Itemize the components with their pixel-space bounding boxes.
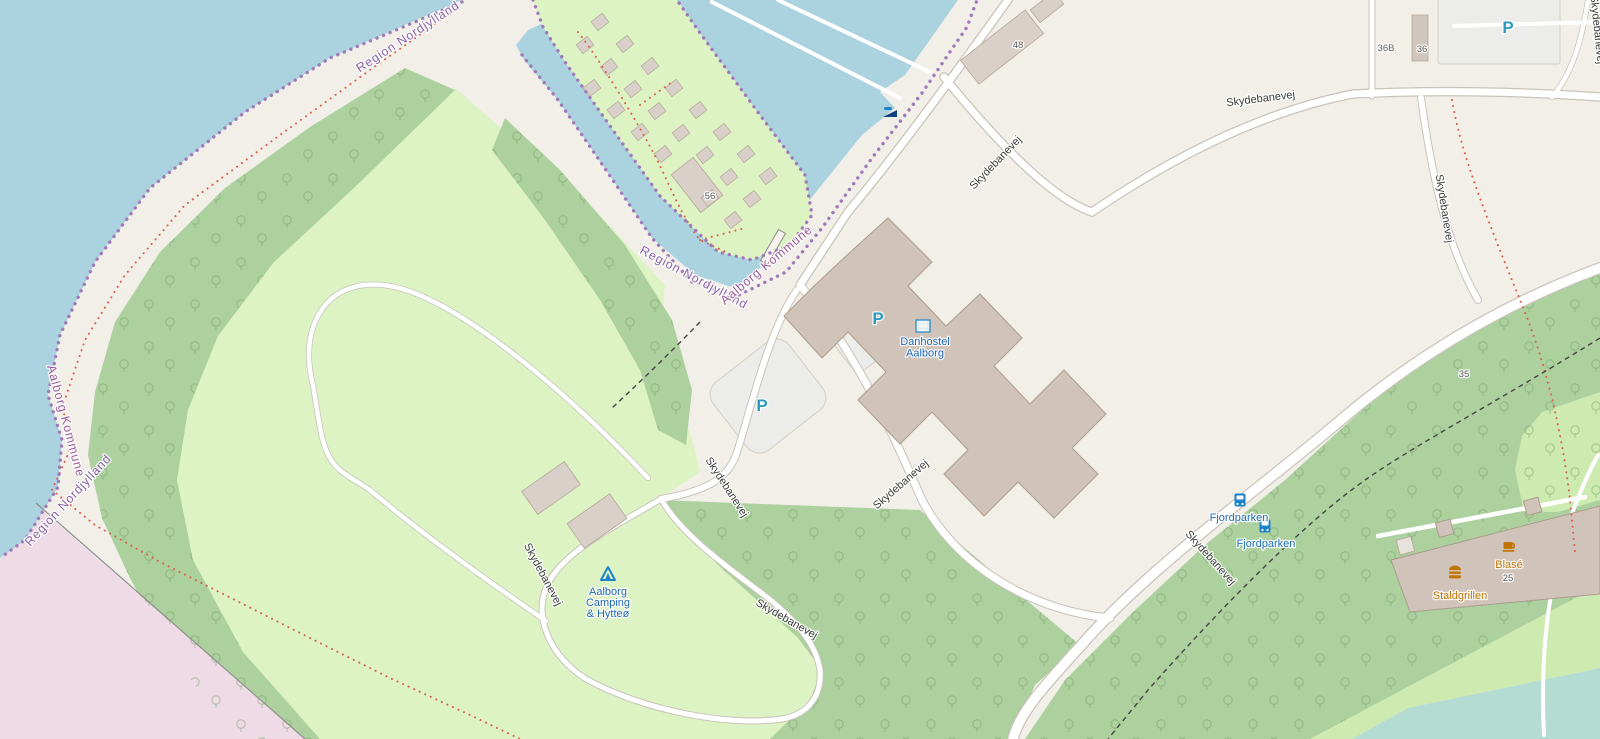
map-canvas[interactable]: Region NordjyllandRegion NordjyllandAalb… [0, 0, 1600, 739]
poi-label: Staldgrillen [1433, 590, 1487, 602]
fast-food-icon [1449, 566, 1461, 579]
poi-label: Fjordparken [1210, 512, 1269, 524]
poi-label: Aalborg [906, 348, 944, 360]
openstreetmap-view[interactable]: Region NordjyllandRegion NordjyllandAalb… [0, 0, 1600, 739]
poi-label: Blasé [1495, 559, 1523, 571]
poi-label: Fjordparken [1237, 538, 1296, 550]
parking-icon: P [756, 396, 767, 415]
house-number-label: 56 [705, 191, 716, 202]
house-number-label: 36 [1417, 44, 1428, 55]
parking-icon: P [1502, 18, 1513, 37]
house-number-label: 25 [1503, 573, 1514, 584]
bus-icon [1235, 494, 1246, 507]
house-number-label: 36B [1378, 43, 1395, 54]
hostel-icon [916, 320, 930, 332]
poi-label: & Hytteø [587, 608, 630, 620]
house-number-label: 48 [1013, 40, 1024, 51]
house-number-label: 35 [1459, 369, 1470, 380]
poi-label: Danhostel [900, 336, 950, 348]
parking-icon: P [872, 309, 883, 328]
